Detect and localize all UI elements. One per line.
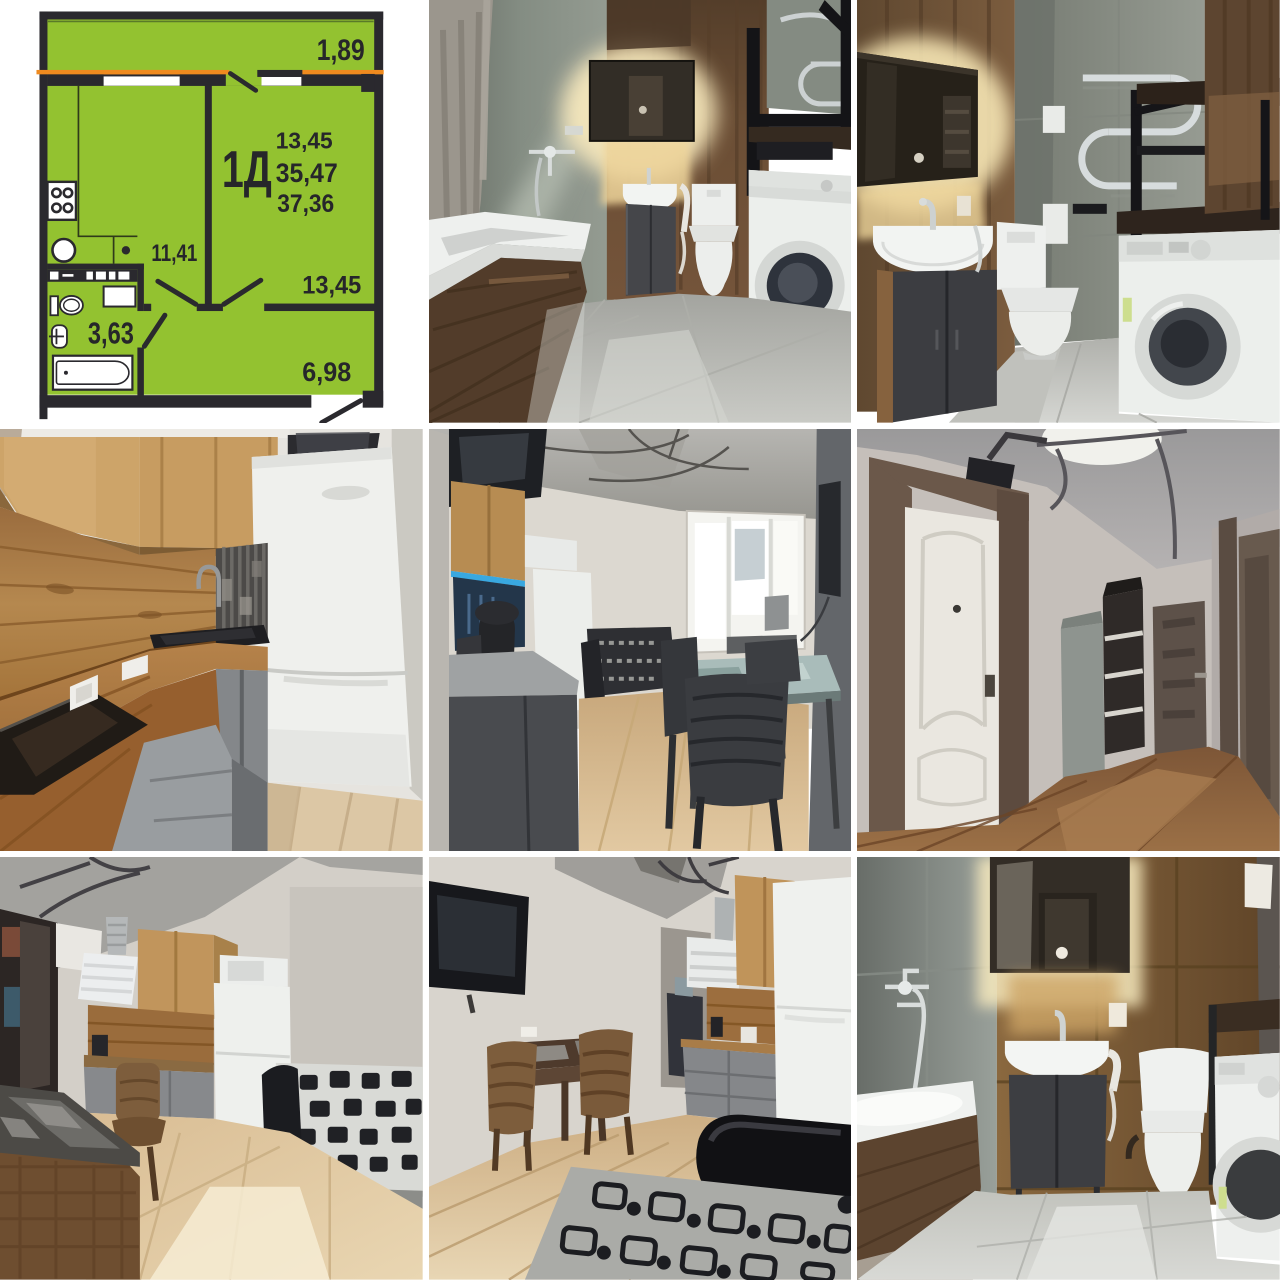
svg-text:3,63: 3,63 <box>88 316 134 351</box>
svg-text:11,41: 11,41 <box>151 240 197 267</box>
svg-text:1,89: 1,89 <box>317 34 365 67</box>
svg-text:35,47: 35,47 <box>276 158 338 188</box>
svg-text:13,45: 13,45 <box>302 271 361 299</box>
svg-text:6,98: 6,98 <box>302 357 351 387</box>
svg-text:1Д: 1Д <box>222 141 272 199</box>
svg-text:37,36: 37,36 <box>277 190 334 218</box>
svg-text:13,45: 13,45 <box>276 128 333 154</box>
